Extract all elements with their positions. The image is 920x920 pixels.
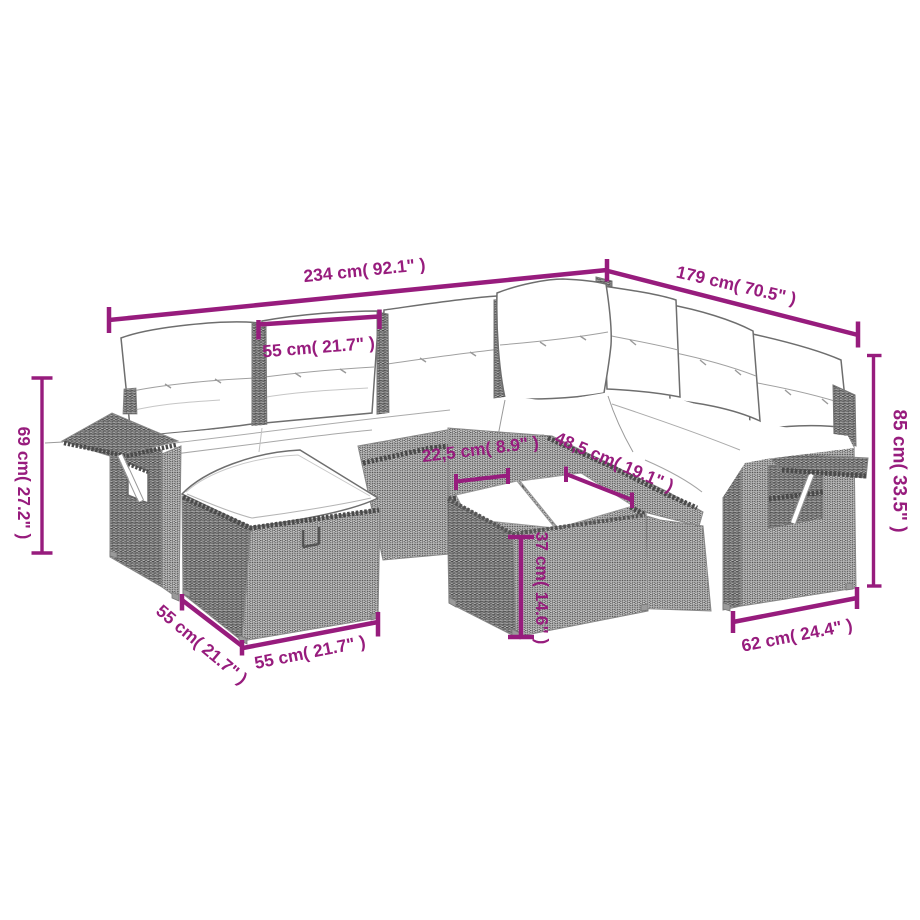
svg-text:69 cm( 27.2" ): 69 cm( 27.2" )	[14, 427, 34, 540]
svg-text:85 cm( 33.5" ): 85 cm( 33.5" )	[889, 409, 910, 532]
svg-text:37 cm( 14.6" ): 37 cm( 14.6" )	[532, 532, 552, 645]
